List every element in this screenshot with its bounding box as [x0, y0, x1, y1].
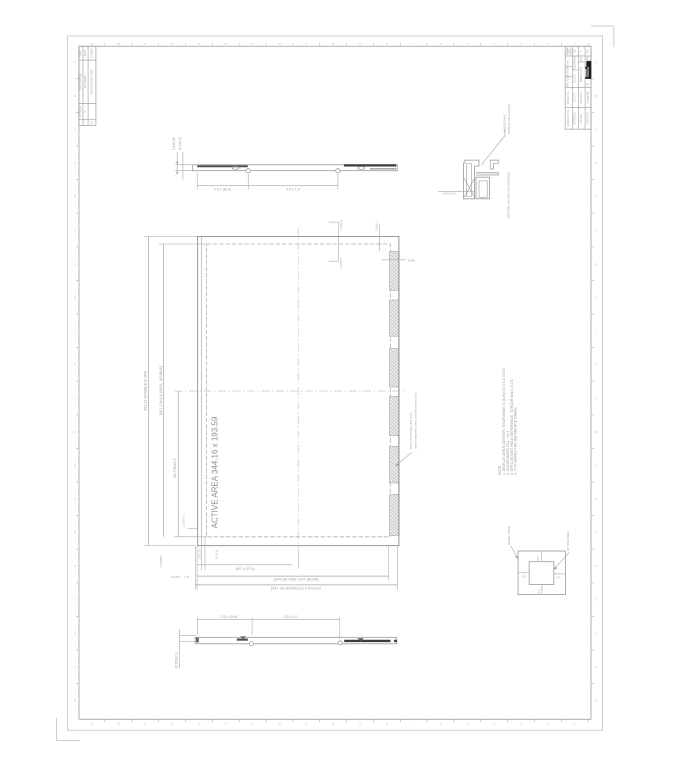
svg-text:(7±0.1): (7±0.1) [215, 550, 219, 559]
svg-text:16: 16 [170, 42, 174, 46]
svg-text:SHEET: SHEET [571, 47, 573, 55]
svg-text:A: A [595, 60, 597, 64]
svg-text:L.S: L.S [184, 575, 189, 579]
svg-text:4. (T.P) MARKS THE REFERENCE D: 4. (T.P) MARKS THE REFERENCE DIMEN. [513, 407, 517, 475]
svg-text:8.0 TFT: 8.0 TFT [574, 93, 577, 102]
svg-text:(344.16) SIDE OUT (W.SR): (344.16) SIDE OUT (W.SR) [273, 578, 318, 582]
svg-text:10: 10 [332, 42, 336, 46]
svg-text:P: P [74, 497, 76, 501]
svg-text:P: P [595, 497, 597, 501]
svg-text:10: 10 [332, 722, 336, 726]
svg-text:D: D [74, 161, 76, 165]
svg-text:MODEL No.: MODEL No. [567, 91, 570, 105]
svg-text:2.5 ± 1.0: 2.5 ± 1.0 [284, 615, 298, 619]
svg-text:+A5 (OD) MAX: +A5 (OD) MAX [503, 115, 507, 134]
svg-text:SIZE A3: SIZE A3 [567, 70, 570, 79]
svg-text:11-05: 11-05 [84, 49, 87, 56]
svg-text:1.5±0.1: 1.5±0.1 [375, 221, 379, 232]
svg-text:19: 19 [90, 42, 94, 46]
svg-text:6.25(D1): 6.25(D1) [159, 555, 163, 567]
svg-text:W: W [73, 699, 76, 703]
svg-text:(WITH GLUE overflow): (WITH GLUE overflow) [507, 104, 511, 134]
svg-text:Innolux: Innolux [586, 66, 590, 77]
svg-text:H: H [74, 295, 76, 299]
svg-text:G: G [74, 262, 76, 266]
svg-text:E: E [595, 195, 597, 199]
svg-text:(panel integration mech. shoul: (panel integration mech. should not touc… [414, 393, 418, 449]
svg-text:96.795±0.5: 96.795±0.5 [172, 458, 177, 477]
svg-text:(347.10) (MODULE) 0.07±0.02: (347.10) (MODULE) 0.07±0.02 [271, 587, 321, 591]
svg-text:F: F [74, 228, 76, 232]
svg-text:DESIGN: DESIGN [580, 113, 583, 123]
svg-text:R: R [595, 531, 597, 535]
svg-text:TOLERANCE: TOLERANCE [574, 56, 577, 70]
svg-text:S: S [595, 564, 597, 568]
svg-text:(1±0.1): (1±0.1) [197, 549, 201, 558]
svg-text:DESCRIPTION: DESCRIPTION [79, 73, 82, 90]
svg-text:0.5: 0.5 [522, 574, 526, 578]
svg-text:2.5 ± (B.H): 2.5 ± (B.H) [214, 188, 231, 192]
svg-text:16: 16 [170, 722, 174, 726]
svg-text:17: 17 [144, 42, 148, 46]
svg-text:ACTIVE P.: ACTIVE P. [580, 91, 583, 103]
svg-text:V: V [595, 665, 597, 669]
svg-text:ACTIVE AREA: ACTIVE AREA [566, 531, 570, 551]
svg-text:B: B [595, 94, 597, 98]
svg-text:0.5: 0.5 [537, 589, 541, 593]
svg-text:BEZEL OPEN: BEZEL OPEN [507, 526, 511, 545]
svg-text:MAX OCA Profile (M.S.F.R): MAX OCA Profile (M.S.F.R) [409, 412, 413, 449]
svg-text:±0.3 X.X: ±0.3 X.X [575, 74, 577, 83]
svg-text:P/N: P/N [581, 57, 583, 61]
svg-text:(347.10±0.2) (BOX, VISIBLE): (347.10±0.2) (BOX, VISIBLE) [159, 365, 163, 415]
svg-text:F: F [595, 228, 597, 232]
svg-text:W: W [594, 699, 597, 703]
svg-text:NEW RELEASE DWG: NEW RELEASE DWG [90, 69, 93, 94]
svg-text:15: 15 [197, 722, 201, 726]
svg-text:B: B [74, 94, 76, 98]
svg-text:167.4 (P.D): 167.4 (P.D) [235, 566, 255, 571]
svg-text:(195): (195) [408, 258, 415, 262]
svg-text:⌕ 0.05 A: ⌕ 0.05 A [339, 257, 343, 269]
svg-text:P080ZFZ-BH2: P080ZFZ-BH2 [580, 66, 583, 82]
svg-text:G: G [595, 262, 597, 266]
svg-text:20/11/05: 20/11/05 [90, 48, 93, 58]
svg-text:SCALE: SCALE [566, 47, 569, 55]
svg-text:353.16 (VISIBLE B.SM): 353.16 (VISIBLE B.SM) [143, 370, 147, 411]
svg-text:14: 14 [224, 722, 228, 726]
svg-text:N: N [595, 463, 597, 467]
svg-text:2.5 ± (B.H): 2.5 ± (B.H) [221, 615, 238, 619]
svg-text:A: A [74, 60, 76, 64]
svg-text:APPROVE: APPROVE [574, 112, 577, 124]
svg-text:2.5 ± 1.0: 2.5 ± 1.0 [286, 188, 300, 192]
svg-text:0.1±0.05: 0.1±0.05 [172, 137, 176, 150]
svg-text:13: 13 [251, 722, 255, 726]
svg-text:Chang Mei: Chang Mei [587, 91, 590, 104]
svg-text:A CHIEN: A CHIEN [79, 106, 82, 116]
svg-text:15: 15 [197, 42, 201, 46]
svg-text:D: D [595, 161, 597, 165]
svg-text:C: C [74, 127, 76, 131]
svg-text:C: C [595, 127, 597, 131]
svg-text:12: 12 [278, 42, 282, 46]
svg-text:( 1.5P.1 ): ( 1.5P.1 ) [182, 515, 186, 527]
svg-text:⌕ 0.05 A: ⌕ 0.05 A [339, 219, 343, 231]
svg-text:K: K [74, 363, 76, 367]
svg-text:N: N [74, 463, 76, 467]
svg-text:14: 14 [224, 42, 228, 46]
svg-text:0.5: 0.5 [557, 575, 561, 579]
svg-text:11: 11 [305, 722, 308, 726]
svg-text:CHECKED: CHECKED [587, 112, 590, 124]
svg-text:T: T [595, 598, 597, 602]
svg-text:T: T [74, 598, 76, 602]
svg-text:11: 11 [305, 42, 308, 46]
svg-text:E: E [74, 195, 76, 199]
svg-text:K: K [595, 363, 597, 367]
svg-text:1st Release: 1st Release [84, 75, 87, 89]
svg-text:R: R [74, 531, 76, 535]
svg-text:U: U [595, 631, 597, 635]
svg-text:DATE: DATE [79, 50, 82, 57]
svg-text:H: H [595, 295, 597, 299]
svg-text:19: 19 [90, 722, 94, 726]
svg-text:DRAWN / CHK: DRAWN / CHK [567, 110, 570, 127]
svg-text:18: 18 [117, 722, 121, 726]
svg-text:U: U [74, 631, 76, 635]
svg-text:(2.5±0.2): (2.5±0.2) [178, 137, 182, 150]
svg-text:0.5: 0.5 [536, 556, 540, 560]
svg-text:(M.H) 0.5: (M.H) 0.5 [443, 192, 456, 196]
svg-text:17: 17 [144, 722, 148, 726]
svg-text:1/1: 1/1 [587, 49, 590, 53]
svg-text:DWG: DWG [587, 56, 589, 62]
svg-text:REV A1: REV A1 [567, 78, 570, 87]
svg-text:ACTIVE AREA 344.16 x 193.59: ACTIVE AREA 344.16 x 193.59 [210, 416, 219, 528]
svg-text:BOTTOM +A5 (OD) A5C (OD) MAX: BOTTOM +A5 (OD) A5C (OD) MAX [507, 172, 511, 218]
svg-text:V: V [74, 665, 76, 669]
svg-text:S: S [74, 564, 76, 568]
svg-text:12: 12 [278, 722, 282, 726]
svg-text:UNIT mm: UNIT mm [568, 61, 570, 71]
svg-text:18: 18 [117, 42, 121, 46]
svg-text:(6.350±0.1): (6.350±0.1) [174, 652, 178, 668]
svg-text:13: 13 [251, 42, 255, 46]
svg-text:12.0±1: 12.0±1 [171, 575, 180, 579]
